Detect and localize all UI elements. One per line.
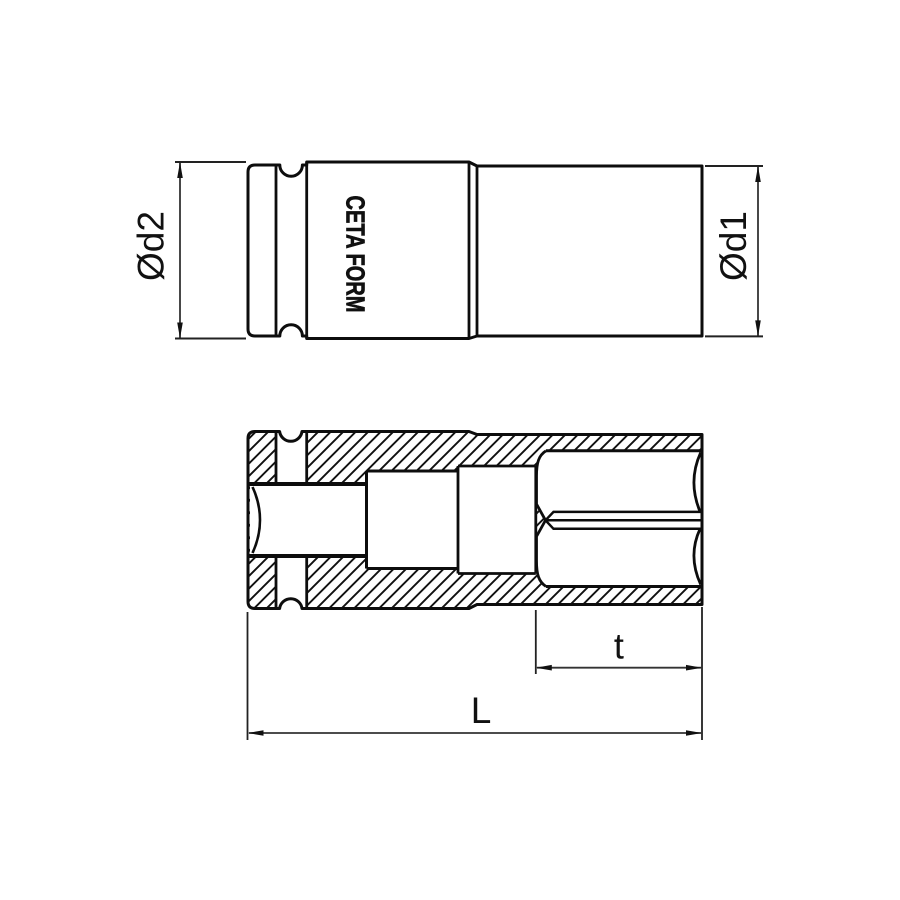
- svg-text:Ød2: Ød2: [131, 211, 172, 281]
- svg-text:L: L: [471, 690, 492, 731]
- svg-text:t: t: [614, 626, 624, 667]
- svg-text:CETA FORM: CETA FORM: [341, 196, 369, 313]
- svg-text:Ød1: Ød1: [713, 211, 754, 281]
